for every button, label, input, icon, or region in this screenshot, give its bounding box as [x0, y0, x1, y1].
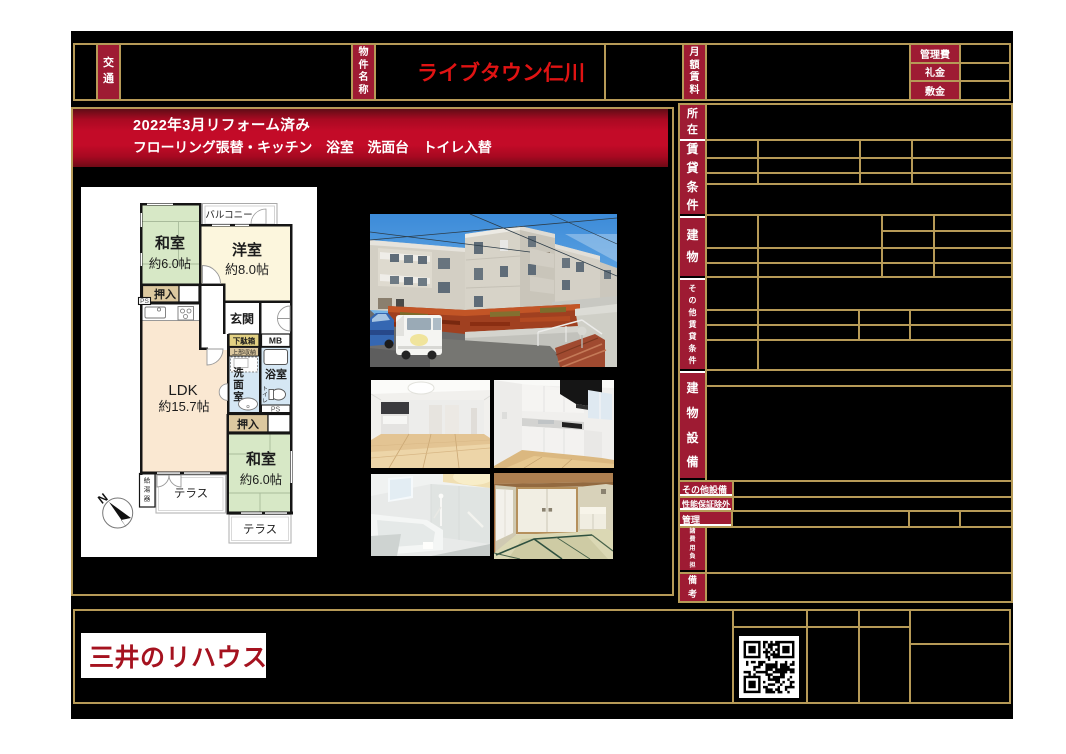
svg-text:押入: 押入 — [237, 417, 259, 431]
svg-text:バルコニー: バルコニー — [205, 210, 252, 221]
svg-text:約8.0帖: 約8.0帖 — [225, 262, 269, 277]
svg-text:浴室: 浴室 — [265, 367, 287, 381]
svg-text:玄関: 玄関 — [230, 311, 254, 326]
svg-text:レ: レ — [262, 399, 268, 405]
svg-text:湯: 湯 — [144, 485, 151, 494]
svg-text:テラス: テラス — [174, 488, 208, 500]
svg-text:器: 器 — [144, 495, 151, 503]
svg-text:洗: 洗 — [233, 366, 244, 379]
svg-text:約6.0帖: 約6.0帖 — [149, 256, 191, 271]
svg-text:面: 面 — [233, 379, 244, 391]
svg-text:PS: PS — [140, 298, 149, 305]
svg-text:約15.7帖: 約15.7帖 — [158, 399, 209, 414]
svg-text:LDK: LDK — [168, 382, 197, 399]
svg-text:洋室: 洋室 — [232, 241, 262, 259]
svg-text:下駄箱: 下駄箱 — [233, 336, 256, 346]
svg-text:約6.0帖: 約6.0帖 — [240, 472, 282, 487]
svg-text:給: 給 — [144, 476, 151, 485]
svg-text:和室: 和室 — [155, 234, 185, 252]
svg-text:MB: MB — [269, 336, 282, 346]
svg-text:和室: 和室 — [246, 450, 276, 468]
svg-text:テラス: テラス — [243, 524, 277, 536]
svg-text:上部収納: 上部収納 — [232, 348, 256, 356]
svg-text:押入: 押入 — [154, 287, 176, 301]
